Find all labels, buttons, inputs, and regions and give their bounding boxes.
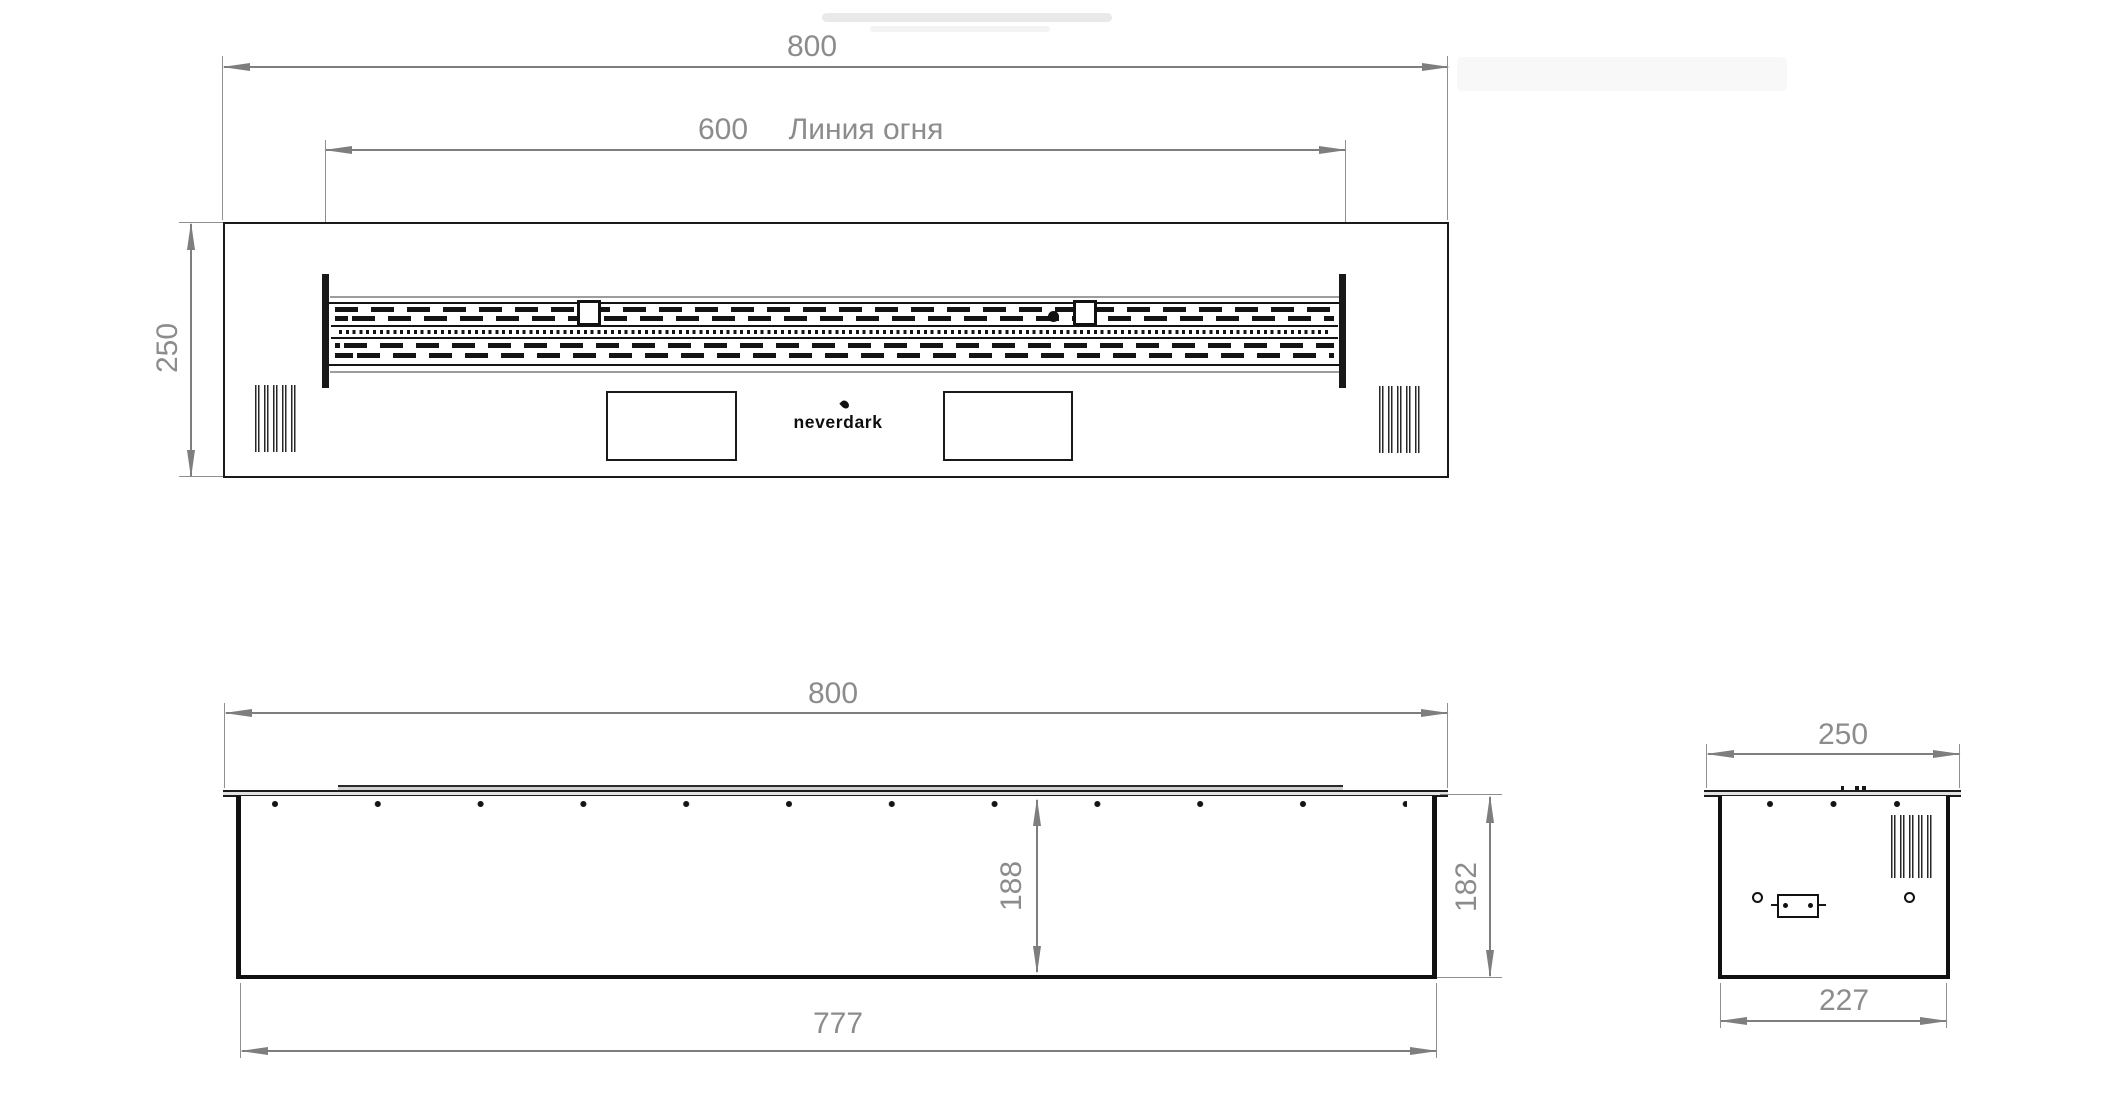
extension-line bbox=[240, 983, 241, 1058]
extension-line bbox=[1437, 977, 1502, 978]
flange-tick bbox=[1862, 786, 1866, 790]
front-body bbox=[236, 796, 1437, 979]
extension-line bbox=[222, 56, 223, 220]
dim-label-side-body-depth: 227 bbox=[1819, 985, 1869, 1017]
arrowhead-left-icon bbox=[240, 1047, 268, 1055]
arrowhead-up-icon bbox=[187, 222, 195, 250]
burner-strip bbox=[329, 302, 1340, 366]
mounting-hole bbox=[1752, 892, 1763, 903]
extension-line bbox=[224, 703, 225, 788]
arrowhead-left-icon bbox=[324, 146, 352, 154]
extension-line bbox=[1720, 983, 1721, 1028]
screw-dot-row-side bbox=[1766, 800, 1906, 808]
arrowhead-down-icon bbox=[1486, 950, 1494, 978]
arrowhead-left-icon bbox=[222, 63, 250, 71]
service-hatch-right bbox=[943, 391, 1073, 461]
burner-end-cap-right bbox=[1339, 274, 1346, 388]
connector-tab bbox=[1771, 904, 1777, 906]
dim-label-inner-depth: 188 bbox=[996, 861, 1028, 911]
technical-drawing-canvas: 800 600 Линия огня 250 bbox=[0, 0, 2112, 1114]
burner-slider-block bbox=[577, 300, 601, 326]
burner-tray-edge bbox=[330, 371, 1340, 373]
connector-pin bbox=[1783, 903, 1788, 908]
extension-line bbox=[1959, 744, 1960, 788]
arrowhead-left-icon bbox=[224, 709, 252, 717]
dim-line-height bbox=[1489, 797, 1491, 976]
extension-line bbox=[179, 476, 224, 477]
dim-line-top-width bbox=[224, 66, 1448, 68]
burner-sensor-dot bbox=[1048, 311, 1059, 322]
extension-line bbox=[1706, 744, 1707, 788]
arrowhead-left-icon bbox=[1719, 1017, 1747, 1025]
vent-slots-right bbox=[1379, 386, 1420, 453]
scan-smudge bbox=[1457, 57, 1787, 91]
brand-logo-text: neverdark bbox=[793, 412, 882, 432]
arrowhead-up-icon bbox=[1486, 795, 1494, 823]
connector-tab bbox=[1819, 904, 1826, 906]
burner-flame-port-row bbox=[339, 330, 1330, 334]
burner-tray-edge bbox=[330, 296, 1340, 298]
arrowhead-right-icon bbox=[1422, 63, 1450, 71]
arrowhead-right-icon bbox=[1410, 1047, 1438, 1055]
dim-line-top-depth bbox=[190, 224, 192, 476]
scan-smudge bbox=[822, 13, 1112, 22]
dim-line-front-width bbox=[226, 712, 1447, 714]
extension-line bbox=[1436, 983, 1437, 1058]
burner-slider-block bbox=[1073, 300, 1097, 326]
burner-hatch-row bbox=[335, 316, 1334, 321]
dim-label-height: 182 bbox=[1451, 862, 1483, 912]
burner-rail-line bbox=[331, 325, 1338, 327]
burner-end-cap-left bbox=[322, 274, 329, 388]
extension-line bbox=[1946, 983, 1947, 1028]
arrowhead-down-icon bbox=[1033, 946, 1041, 974]
dim-line-side-body-depth bbox=[1721, 1020, 1946, 1022]
dim-label-front-width: 800 bbox=[808, 678, 858, 710]
dim-line-side-depth bbox=[1708, 753, 1959, 755]
scan-smudge bbox=[870, 26, 1050, 32]
burner-hatch-row bbox=[335, 353, 1334, 358]
arrowhead-right-icon bbox=[1421, 709, 1449, 717]
dim-label-top-depth: 250 bbox=[152, 323, 184, 373]
connector-pin bbox=[1808, 903, 1813, 908]
arrowhead-left-icon bbox=[1706, 750, 1734, 758]
vent-slots-side bbox=[1891, 815, 1932, 878]
dim-label-top-width: 800 bbox=[787, 31, 837, 63]
fire-line-text: Линия огня bbox=[789, 114, 944, 146]
burner-hatch-row bbox=[335, 307, 1334, 312]
dim-line-inner-depth bbox=[1036, 800, 1038, 972]
arrowhead-right-icon bbox=[1920, 1017, 1948, 1025]
screw-dot-row bbox=[271, 800, 1407, 808]
dim-label-fire-line-length: 600 bbox=[698, 114, 748, 146]
arrowhead-right-icon bbox=[1319, 146, 1347, 154]
extension-line bbox=[1447, 56, 1448, 220]
arrowhead-up-icon bbox=[1033, 798, 1041, 826]
dim-line-fire-line bbox=[326, 149, 1345, 151]
mounting-hole bbox=[1904, 892, 1915, 903]
service-hatch-left bbox=[606, 391, 737, 461]
extension-line bbox=[1447, 703, 1448, 788]
arrowhead-right-icon bbox=[1933, 750, 1961, 758]
burner-rail-line bbox=[331, 337, 1338, 339]
dim-line-body-width bbox=[242, 1050, 1436, 1052]
dim-label-side-depth: 250 bbox=[1818, 719, 1868, 751]
burner-hatch-row bbox=[335, 343, 1334, 348]
vent-slots-left bbox=[255, 385, 296, 452]
dim-label-body-width: 777 bbox=[813, 1008, 863, 1040]
arrowhead-down-icon bbox=[187, 450, 195, 478]
flange-tick bbox=[1841, 786, 1844, 790]
extension-line bbox=[1440, 794, 1502, 795]
flange-tick bbox=[1855, 786, 1859, 790]
extension-line bbox=[179, 222, 224, 223]
brand-logo: neverdark bbox=[793, 412, 882, 433]
